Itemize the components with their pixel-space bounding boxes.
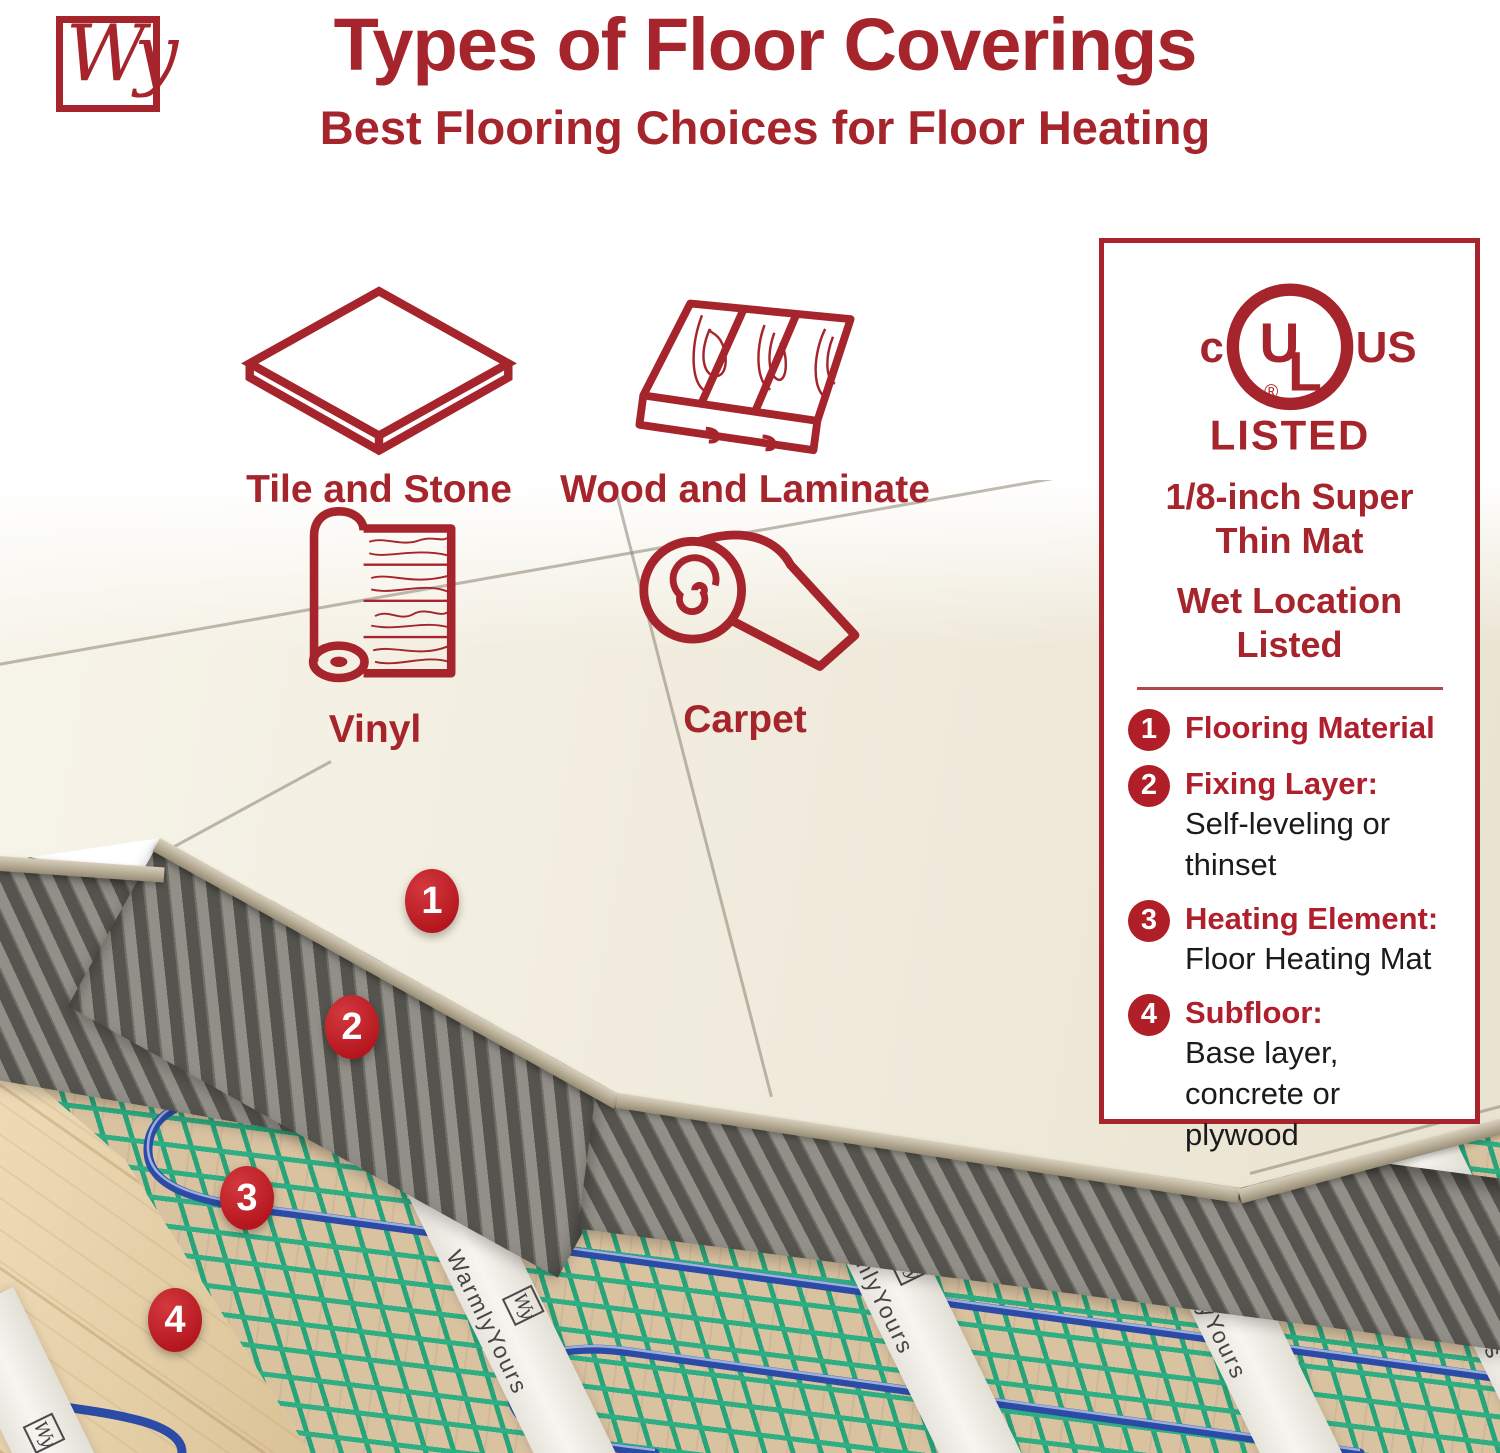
legend-item-desc: Self-leveling or thinset bbox=[1185, 804, 1451, 886]
legend-item-title: Subfloor: bbox=[1185, 993, 1451, 1033]
flooring-type-label: Carpet bbox=[683, 698, 807, 742]
layer-marker-3: 3 bbox=[220, 1166, 274, 1230]
layer-marker-2: 2 bbox=[325, 995, 379, 1059]
flooring-type-label: Wood and Laminate bbox=[560, 468, 930, 512]
marker-number: 3 bbox=[236, 1177, 257, 1220]
panel-divider bbox=[1137, 687, 1443, 690]
flooring-type-label: Vinyl bbox=[329, 708, 422, 752]
flooring-type-tile-stone: Tile and Stone bbox=[214, 280, 544, 512]
flooring-type-vinyl: Vinyl bbox=[255, 498, 495, 752]
legend-item-title: Flooring Material bbox=[1185, 708, 1435, 748]
vinyl-icon bbox=[275, 498, 475, 698]
page-subtitle: Best Flooring Choices for Floor Heating bbox=[0, 100, 1500, 155]
ul-listed-label: LISTED bbox=[1209, 412, 1369, 459]
marker-number: 1 bbox=[421, 880, 442, 923]
ul-registered-mark: ® bbox=[1264, 382, 1278, 403]
ul-suffix-us: US bbox=[1355, 323, 1416, 372]
layer-marker-4: 4 bbox=[148, 1288, 202, 1352]
legend-number-badge: 4 bbox=[1128, 994, 1170, 1036]
infographic-canvas: Wy WarmlyYours Wy WarmlyYours Wy WarmlyY… bbox=[0, 0, 1500, 1453]
feature-thin-mat: 1/8-inch Super Thin Mat bbox=[1140, 475, 1440, 563]
legend-item-fixing-layer: 2 Fixing Layer: Self-leveling or thinset bbox=[1128, 764, 1461, 886]
brand-monogram: Wy bbox=[62, 8, 172, 148]
flooring-type-wood-laminate: Wood and Laminate bbox=[565, 282, 925, 512]
legend-item-heating-element: 3 Heating Element: Floor Heating Mat bbox=[1128, 899, 1461, 980]
layer-legend-list: 1 Flooring Material 2 Fixing Layer: Self… bbox=[1104, 690, 1475, 1156]
legend-number-badge: 2 bbox=[1128, 765, 1170, 807]
ul-listed-icon: U L c US ® LISTED bbox=[1155, 263, 1425, 463]
ul-mark-l: L bbox=[1288, 341, 1322, 403]
marker-number: 4 bbox=[164, 1299, 185, 1342]
legend-item-desc: Base layer, concrete or plywood bbox=[1185, 1033, 1451, 1156]
ul-prefix-c: c bbox=[1199, 323, 1223, 372]
wood-laminate-icon bbox=[605, 282, 885, 458]
legend-number-badge: 1 bbox=[1128, 709, 1170, 751]
product-info-panel: U L c US ® LISTED 1/8-inch Super Thin Ma… bbox=[1099, 238, 1480, 1124]
marker-number: 2 bbox=[341, 1006, 362, 1049]
flooring-type-carpet: Carpet bbox=[595, 512, 895, 742]
legend-item-subfloor: 4 Subfloor: Base layer, concrete or plyw… bbox=[1128, 993, 1461, 1156]
carpet-icon bbox=[623, 512, 868, 688]
legend-item-desc: Floor Heating Mat bbox=[1185, 939, 1438, 980]
tile-grout-line bbox=[164, 760, 332, 853]
tile-stone-icon bbox=[229, 280, 529, 458]
feature-wet-location: Wet Location Listed bbox=[1140, 579, 1440, 667]
layer-marker-1: 1 bbox=[405, 869, 459, 933]
legend-item-title: Fixing Layer: bbox=[1185, 764, 1451, 804]
page-title: Types of Floor Coverings bbox=[0, 2, 1500, 87]
legend-item-flooring-material: 1 Flooring Material bbox=[1128, 708, 1461, 751]
strip-monogram: Wy bbox=[22, 1413, 65, 1453]
legend-number-badge: 3 bbox=[1128, 900, 1170, 942]
legend-item-title: Heating Element: bbox=[1185, 899, 1438, 939]
